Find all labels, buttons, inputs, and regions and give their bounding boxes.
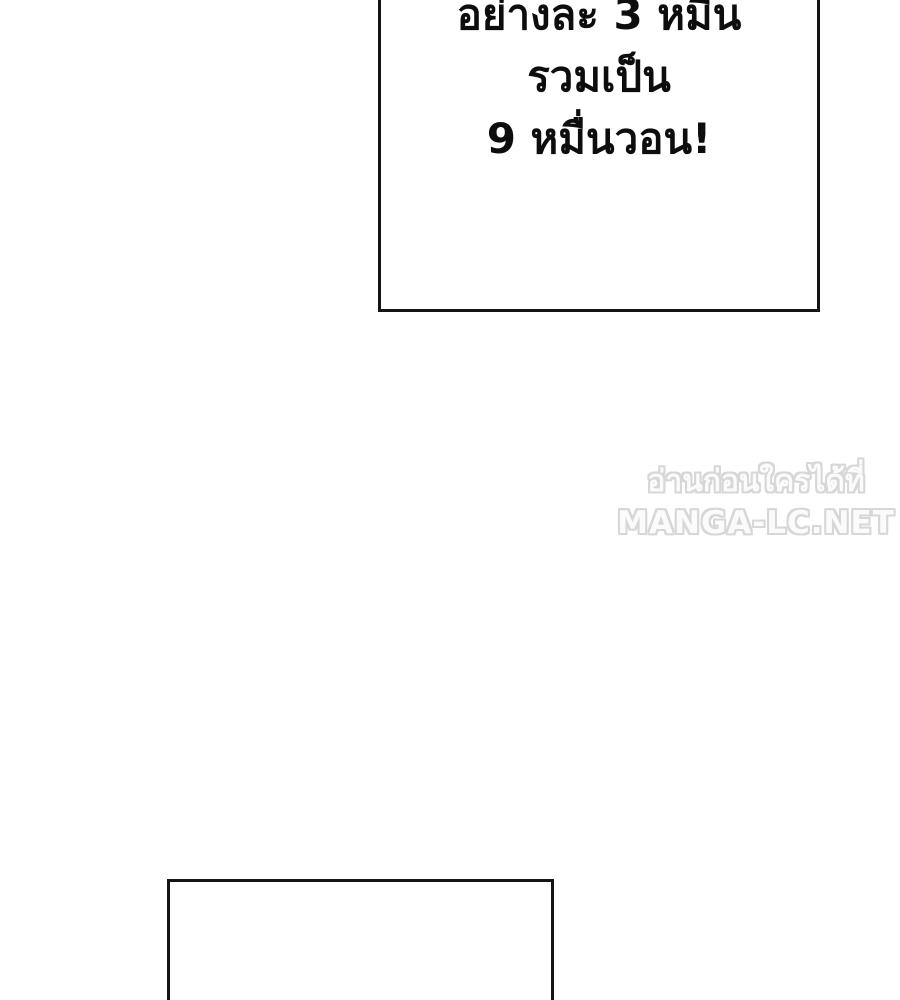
speech-bubble-top-text: อย่างละ 3 หมื่น รวมเป็น 9 หมื่นวอน! [381, 0, 817, 170]
speech-bubble-bottom [167, 879, 554, 1000]
speech-line: 9 หมื่นวอน! [381, 108, 817, 170]
watermark-site-name: MANGA-LC.NET [600, 503, 900, 543]
manga-page-canvas: อย่างละ 3 หมื่น รวมเป็น 9 หมื่นวอน! อ่าน… [0, 0, 900, 1000]
speech-line: รวมเป็น [381, 46, 817, 108]
speech-line: อย่างละ 3 หมื่น [381, 0, 817, 46]
watermark-thai-tagline: อ่านก่อนใครได้ที่ [600, 460, 900, 503]
site-watermark: อ่านก่อนใครได้ที่ MANGA-LC.NET [600, 460, 900, 543]
speech-bubble-top: อย่างละ 3 หมื่น รวมเป็น 9 หมื่นวอน! [378, 0, 820, 312]
